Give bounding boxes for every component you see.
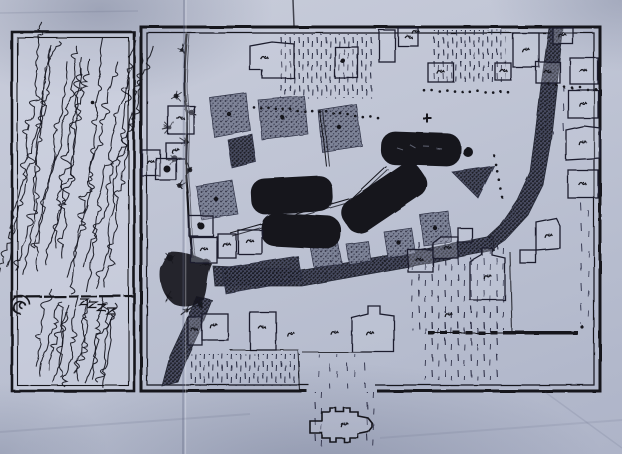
- dotted-boundary: [289, 108, 292, 111]
- parcel-center-dot: [214, 197, 218, 201]
- fold-crease-highlight: [186, 0, 187, 454]
- dotted-boundary: [369, 115, 372, 118]
- well-dot: [198, 223, 205, 230]
- scale-bar-end-dot: [580, 325, 583, 328]
- house-plot: [458, 228, 472, 242]
- house-plot: [191, 237, 217, 263]
- cross-marker: [423, 114, 432, 123]
- house-plot: [352, 306, 394, 352]
- dotted-boundary: [476, 89, 479, 92]
- dotted-boundary: [579, 86, 582, 89]
- script-glyph: [286, 331, 294, 336]
- parcel-center-dot: [337, 125, 341, 129]
- dotted-boundary: [446, 89, 449, 92]
- dotted-boundary: [587, 89, 590, 92]
- house-plot: [218, 234, 236, 258]
- dotted-boundary: [260, 107, 263, 110]
- dotted-boundary: [354, 115, 357, 118]
- house-plot: [202, 314, 228, 340]
- hatched-strip-east-edge: [578, 198, 598, 324]
- dotted-boundary: [438, 90, 441, 93]
- dotted-boundary: [311, 110, 314, 113]
- parcel-center-dot: [280, 115, 284, 119]
- house-plot: [250, 42, 294, 78]
- black-plot: [250, 175, 334, 215]
- dotted-boundary: [296, 110, 299, 113]
- dotted-boundary: [501, 196, 504, 199]
- dotted-boundary: [453, 90, 456, 93]
- scale-bar-dash: [491, 331, 498, 335]
- house-plot: [168, 106, 194, 134]
- hatched-band-bottom: [190, 354, 300, 386]
- scale-bar-dash: [428, 331, 435, 335]
- dotted-boundary: [491, 91, 494, 94]
- dotted-boundary: [325, 111, 328, 114]
- black-plot: [260, 212, 342, 249]
- tree-scribble: [171, 91, 182, 102]
- house-plot: [379, 30, 395, 62]
- ink-blot: [463, 147, 473, 157]
- house-plot: [335, 47, 358, 78]
- tree-scribble: [187, 163, 193, 174]
- tree-scribble: [177, 180, 187, 190]
- dotted-boundary: [494, 163, 497, 166]
- dotted-boundary: [430, 89, 433, 92]
- legend-divider-rule: [14, 296, 133, 297]
- ink-speck: [91, 101, 95, 105]
- dotted-boundary: [499, 187, 502, 190]
- dotted-boundary: [595, 88, 598, 91]
- dotted-boundary: [469, 91, 472, 94]
- dotted-boundary: [498, 178, 501, 181]
- house-plot: [495, 63, 511, 80]
- church-road-upper: [316, 354, 372, 388]
- black-plot: [380, 131, 461, 167]
- dotted-boundary: [253, 106, 256, 109]
- dotted-boundary: [555, 84, 558, 87]
- dotted-boundary: [499, 90, 502, 93]
- shaded-triangle: [452, 166, 494, 198]
- house-plot: [250, 312, 276, 350]
- dotted-boundary: [362, 116, 365, 119]
- dotted-boundary: [461, 90, 464, 93]
- script-glyph-dot: [204, 247, 205, 248]
- well-dot: [164, 166, 171, 173]
- scale-bar-dash: [441, 331, 448, 335]
- fold-crease-vertical: [183, 0, 184, 454]
- photo-of-map-document: { "document": { "kind": "scanned photoco…: [0, 0, 622, 454]
- dotted-boundary: [267, 107, 270, 110]
- script-glyph: [331, 330, 339, 334]
- house-plot: [536, 218, 560, 250]
- parcel-center-dot: [397, 241, 401, 245]
- dotted-boundary: [547, 82, 550, 85]
- ink-blot: [341, 59, 346, 64]
- dotted-boundary: [571, 86, 574, 89]
- shaded-wedge-road-north: [222, 256, 302, 294]
- crease-bottom-left: [0, 414, 250, 432]
- dotted-boundary: [304, 110, 307, 113]
- crease-bottom-right: [380, 420, 622, 438]
- dotted-boundary: [423, 89, 426, 92]
- dotted-boundary: [484, 91, 487, 94]
- ink-crease-top-center: [293, 0, 294, 26]
- map-scan: [0, 0, 622, 454]
- dotted-boundary: [496, 170, 499, 173]
- shaded-parcel-dark: [228, 134, 256, 168]
- dotted-boundary: [507, 91, 510, 94]
- map-ink-layer: [0, 22, 600, 450]
- dotted-boundary: [377, 117, 380, 120]
- shaded-parcel: [346, 241, 371, 264]
- dotted-boundary: [282, 108, 285, 111]
- scale-bar-dash: [453, 331, 460, 335]
- dotted-boundary: [563, 85, 566, 88]
- tree-twig: [187, 170, 190, 171]
- hatched-area-southeast-low: [420, 302, 500, 380]
- field-boundary: [510, 252, 512, 332]
- dotted-boundary: [275, 108, 278, 111]
- parcel-center-dot: [433, 226, 437, 230]
- dotted-boundary: [493, 154, 496, 157]
- parcel-center-dot: [227, 112, 231, 116]
- dotted-boundary: [346, 113, 349, 116]
- scale-bar-dash: [466, 331, 473, 335]
- scale-bar-solid: [503, 331, 578, 335]
- crease-top-left: [0, 11, 138, 13]
- house-plot: [520, 250, 536, 263]
- dotted-boundary: [333, 113, 336, 116]
- dotted-boundary: [339, 112, 342, 115]
- scale-bar-dash: [478, 331, 485, 335]
